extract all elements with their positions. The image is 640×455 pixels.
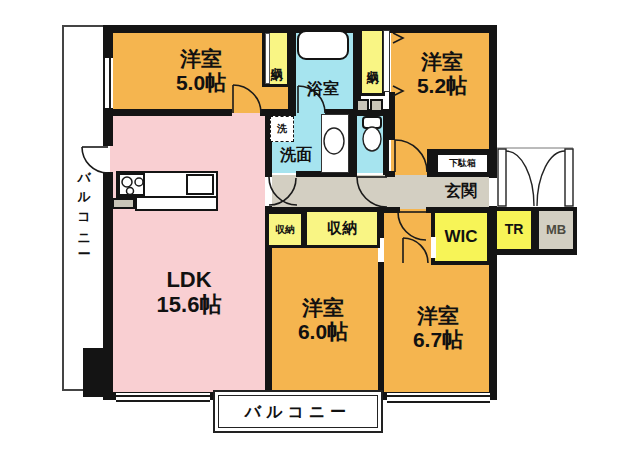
- front-door-leaf: [498, 149, 506, 206]
- balcony-south-label: バルコニー: [245, 403, 352, 421]
- corner-pillar: [83, 348, 112, 397]
- room-5-2-vestibule-floor: [391, 150, 427, 177]
- washer-space: 洗: [270, 116, 294, 142]
- wic-label: WIC: [444, 227, 477, 246]
- wall: [349, 113, 357, 175]
- window-line: [387, 395, 490, 397]
- floor-plan: 収納 収納 収納 収納 下駄箱 WIC TR MB 洗: [0, 0, 640, 455]
- kitchen-refrigerator-space: [112, 198, 135, 209]
- bath-label: 浴室: [294, 79, 352, 99]
- wall: [385, 171, 395, 177]
- bathtub: [297, 30, 349, 60]
- ldk-floor: [110, 113, 267, 394]
- wall: [103, 108, 113, 146]
- window-line: [103, 58, 105, 108]
- closet-large: 収納: [304, 209, 380, 248]
- closet-small: 収納: [266, 211, 304, 248]
- window-line: [116, 400, 210, 402]
- closet-label: 収納: [269, 57, 282, 61]
- wall: [113, 109, 232, 116]
- meter-box-label: MB: [546, 223, 566, 238]
- toilet-tank: [362, 116, 382, 129]
- wall: [103, 33, 113, 58]
- closet-room-5-2: 収納: [359, 28, 385, 96]
- window-ldk-south: [116, 393, 210, 404]
- shoe-cabinet-label: 下駄箱: [449, 158, 476, 168]
- washroom-name: 洗面: [280, 146, 312, 164]
- ldk-size: 15.6帖: [157, 293, 222, 318]
- closet-label: 収納: [327, 220, 357, 237]
- shoe-cabinet: 下駄箱: [436, 153, 489, 174]
- wic-doorway: [431, 237, 436, 258]
- window-room-6-7-south: [387, 393, 490, 405]
- bath-name: 浴室: [307, 80, 339, 98]
- washer-label: 洗: [277, 123, 287, 134]
- closet-folding-door: [383, 30, 390, 92]
- window-line: [109, 58, 111, 108]
- room-6-7-size: 6.7帖: [413, 328, 463, 352]
- window-line: [116, 395, 210, 397]
- trunk-room: TR: [493, 207, 535, 253]
- meter-box: MB: [535, 207, 577, 253]
- front-door-arc: [506, 151, 534, 206]
- room-6-0-name: 洋室: [302, 296, 344, 320]
- room-5-0-label: 洋室 5.0帖: [131, 45, 271, 97]
- wall: [389, 92, 395, 140]
- ldk-label: LDK 15.6帖: [119, 265, 259, 321]
- balcony-south: バルコニー: [213, 390, 383, 433]
- room-5-0-size: 5.0帖: [176, 71, 226, 95]
- room-6-0-size: 6.0帖: [298, 320, 348, 344]
- doorway-ldk-hall: [265, 177, 272, 206]
- entrance-label: 玄関: [434, 180, 488, 202]
- kitchen-sink: [186, 174, 214, 195]
- window-line: [387, 401, 490, 403]
- entrance-name: 玄関: [445, 182, 477, 200]
- room-6-7-label: 洋室 6.7帖: [368, 302, 508, 354]
- doorway-entrance: [489, 178, 497, 206]
- room-5-2-size: 5.2帖: [417, 74, 467, 98]
- meter-box-door-arc: [537, 151, 565, 206]
- closet-label: 収納: [275, 224, 295, 235]
- pipe-space: [356, 99, 369, 112]
- meter-box-door-leaf: [565, 149, 573, 206]
- room-5-0-name: 洋室: [180, 47, 222, 71]
- washroom-label: 洗面: [270, 145, 322, 165]
- room-6-7-name: 洋室: [417, 304, 459, 328]
- balcony-west: バルコニー: [62, 25, 103, 391]
- room-5-2-label: 洋室 5.2帖: [398, 48, 486, 100]
- washbasin-counter: [321, 114, 349, 173]
- walk-in-closet: WIC: [431, 209, 491, 265]
- trunk-room-label: TR: [505, 222, 524, 238]
- room-5-2-name: 洋室: [421, 50, 463, 74]
- closet-label: 収納: [365, 60, 378, 64]
- balcony-south-inner-border: バルコニー: [218, 395, 378, 428]
- balcony-west-label: バルコニー: [76, 163, 91, 252]
- kitchen-lower-counter: [135, 196, 218, 211]
- ldk-name: LDK: [166, 268, 211, 293]
- pipe-space: [370, 99, 383, 112]
- kitchen-stove: [118, 173, 145, 196]
